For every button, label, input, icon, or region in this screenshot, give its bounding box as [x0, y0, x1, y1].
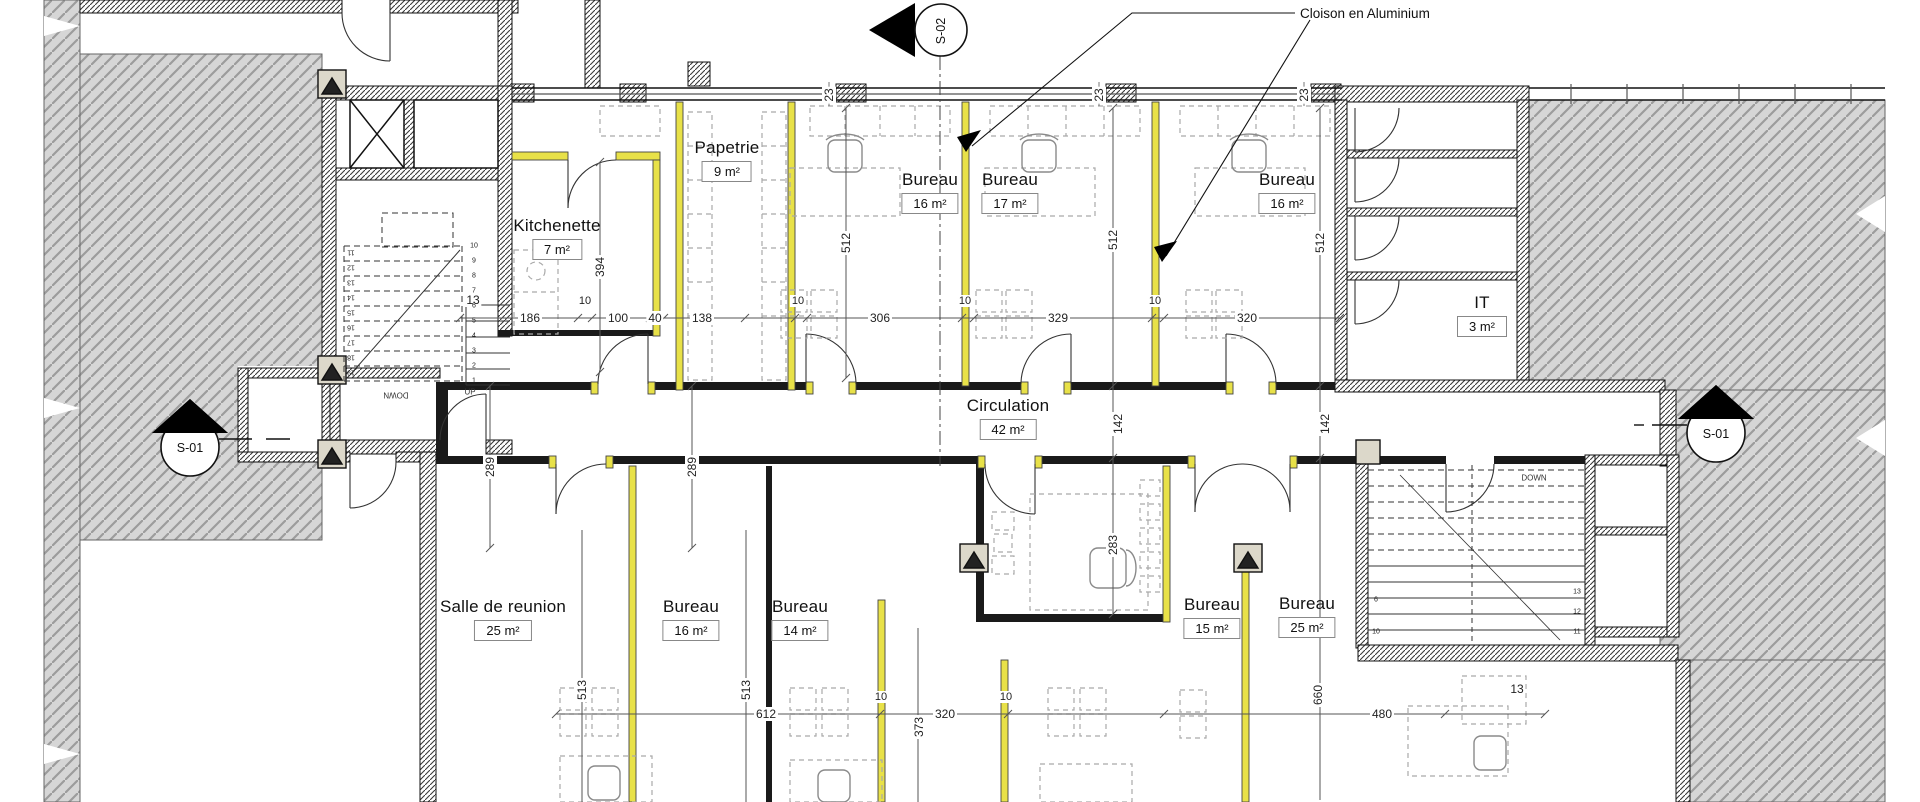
room-label-kitchenette: Kitchenette 7 m² — [513, 216, 600, 260]
room-area: 17 m² — [981, 193, 1038, 214]
dim-mid-40: 40 — [646, 311, 663, 325]
stair-num: 10 — [470, 243, 478, 250]
dim-v-373: 373 — [912, 715, 926, 739]
dim-v-512c: 512 — [1313, 231, 1327, 255]
dim-v-142b: 142 — [1318, 412, 1332, 436]
annotation-leaders — [957, 13, 1310, 262]
room-name: Bureau — [1183, 595, 1240, 615]
room-area: 16 m² — [1258, 193, 1315, 214]
right-stairs — [1368, 465, 1585, 645]
dim-v-289a: 289 — [483, 455, 497, 479]
stair-down-label-left: DOWN — [383, 391, 408, 400]
room-area: 25 m² — [474, 620, 531, 641]
plan-linework — [0, 0, 1920, 802]
section-marker-s01-left: S-01 — [177, 441, 203, 455]
room-area: 9 m² — [702, 161, 752, 182]
dim-v-142a: 142 — [1111, 412, 1125, 436]
stair-num: 6 — [1374, 597, 1378, 604]
stair-num: 7 — [472, 288, 476, 295]
stair-num: 19 — [347, 369, 355, 376]
stair-num: 1 — [472, 378, 476, 385]
room-name: Bureau — [1278, 594, 1335, 614]
dim-mid-329: 329 — [1046, 311, 1070, 325]
room-name: Bureau — [901, 170, 958, 190]
dim-mid-10c: 10 — [957, 295, 973, 307]
room-area: 16 m² — [901, 193, 958, 214]
stair-num: 6 — [472, 303, 476, 310]
stair-num: 14 — [347, 294, 355, 301]
room-area: 16 m² — [662, 620, 719, 641]
room-label-it: IT 3 m² — [1457, 293, 1507, 337]
dim-mid-320: 320 — [1235, 311, 1259, 325]
room-name: Circulation — [967, 396, 1050, 416]
section-marker-s02: S-02 — [934, 18, 948, 44]
dim-bot-13: 13 — [1508, 682, 1525, 696]
stair-num: 3 — [472, 348, 476, 355]
dim-bot-10a: 10 — [873, 691, 889, 703]
stair-num: 13 — [347, 279, 355, 286]
dim-bot-612: 612 — [754, 707, 778, 721]
stair-down-label-right: DOWN — [1521, 474, 1546, 483]
dim-v-289b: 289 — [685, 455, 699, 479]
room-label-bureau-bottom-3: Bureau 15 m² — [1183, 595, 1240, 639]
room-name: Bureau — [662, 597, 719, 617]
dim-bot-480: 480 — [1370, 707, 1394, 721]
stair-num: 10 — [1372, 629, 1380, 636]
stair-num: 11 — [347, 249, 354, 256]
room-name: Bureau — [1258, 170, 1315, 190]
dim-v-394: 394 — [593, 255, 607, 279]
room-area: 15 m² — [1183, 618, 1240, 639]
room-area: 14 m² — [771, 620, 828, 641]
dim-top-23-2: 23 — [1092, 86, 1106, 103]
stair-num: 12 — [347, 264, 355, 271]
dim-v-512a: 512 — [839, 231, 853, 255]
dim-mid-100: 100 — [606, 311, 630, 325]
room-label-bureau-bottom-4: Bureau 25 m² — [1278, 594, 1335, 638]
dim-mid-306: 306 — [868, 311, 892, 325]
stair-num: 15 — [347, 309, 355, 316]
room-name: Bureau — [771, 597, 828, 617]
room-label-salle-de-reunion: Salle de reunion 25 m² — [440, 597, 566, 641]
stair-num: 9 — [472, 258, 476, 265]
room-label-circulation: Circulation 42 m² — [967, 396, 1050, 440]
dim-mid-138: 138 — [690, 311, 714, 325]
section-marker-s01-right: S-01 — [1703, 427, 1729, 441]
stair-num: 11 — [1573, 629, 1580, 636]
dim-mid-186: 186 — [518, 311, 542, 325]
dim-v-283: 283 — [1106, 533, 1120, 557]
dim-v-660: 660 — [1311, 683, 1325, 707]
room-area: 7 m² — [532, 239, 582, 260]
room-label-bureau-top-2: Bureau 17 m² — [981, 170, 1038, 214]
room-label-papetrie: Papetrie 9 m² — [695, 138, 760, 182]
dim-bot-320: 320 — [933, 707, 957, 721]
dim-v-512b: 512 — [1106, 228, 1120, 252]
dim-mid-10a: 10 — [577, 295, 593, 307]
cloison-annotation: Cloison en Aluminium — [1300, 6, 1430, 21]
room-name: IT — [1457, 293, 1507, 313]
stair-num: 17 — [347, 339, 355, 346]
stair-up-label: UP — [464, 388, 475, 397]
stair-num: 2 — [472, 363, 476, 370]
room-name: Papetrie — [695, 138, 760, 158]
room-area: 3 m² — [1457, 316, 1507, 337]
stair-num: 8 — [472, 273, 476, 280]
room-name: Kitchenette — [513, 216, 600, 236]
stair-num: 4 — [472, 333, 476, 340]
room-label-bureau-top-3: Bureau 16 m² — [1258, 170, 1315, 214]
room-area: 42 m² — [979, 419, 1036, 440]
dim-bot-10b: 10 — [998, 691, 1014, 703]
stair-num: 13 — [1573, 589, 1581, 596]
floor-plan: Cloison en Aluminium Papetrie 9 m² Kitch… — [0, 0, 1920, 802]
room-name: Bureau — [981, 170, 1038, 190]
room-area: 25 m² — [1278, 617, 1335, 638]
stair-num: 18 — [347, 354, 355, 361]
stair-num: 16 — [347, 324, 355, 331]
dim-mid-10b: 10 — [790, 295, 806, 307]
elevator-shaft — [350, 100, 498, 168]
stair-num: 5 — [472, 318, 476, 325]
room-name: Salle de reunion — [440, 597, 566, 617]
room-label-bureau-bottom-1: Bureau 16 m² — [662, 597, 719, 641]
room-label-bureau-top-1: Bureau 16 m² — [901, 170, 958, 214]
dim-top-23-1: 23 — [822, 86, 836, 103]
dim-top-23-3: 23 — [1297, 86, 1311, 103]
room-label-bureau-bottom-2: Bureau 14 m² — [771, 597, 828, 641]
stair-num: 12 — [1573, 609, 1581, 616]
dim-v-513b: 513 — [739, 678, 753, 702]
dim-v-513a: 513 — [575, 678, 589, 702]
dim-mid-10d: 10 — [1147, 295, 1163, 307]
